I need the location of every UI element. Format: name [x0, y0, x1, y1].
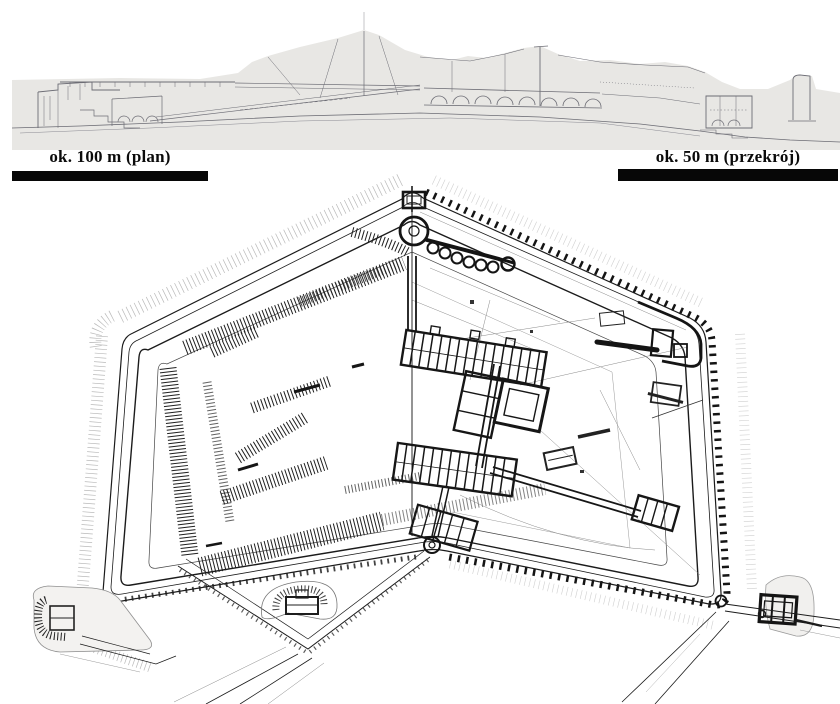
bottom-right-roads	[622, 612, 729, 704]
horseshoe-outwork	[261, 581, 337, 619]
covered-way	[174, 551, 430, 704]
figure-root: ok. 100 m (plan) ok. 50 m (przekrój)	[0, 0, 840, 704]
scale-bar-plan-label: ok. 100 m (plan)	[12, 147, 208, 167]
fort-cross-section-drawing	[12, 12, 840, 150]
fortress-drawing	[0, 0, 840, 704]
fort-plan-drawing	[33, 180, 840, 704]
scale-bar-section-label: ok. 50 m (przekrój)	[618, 147, 838, 167]
southeast-outwork	[725, 576, 840, 638]
scale-bar-plan	[12, 171, 208, 181]
scale-bar-section	[618, 169, 838, 181]
southwest-outwork	[33, 586, 176, 672]
